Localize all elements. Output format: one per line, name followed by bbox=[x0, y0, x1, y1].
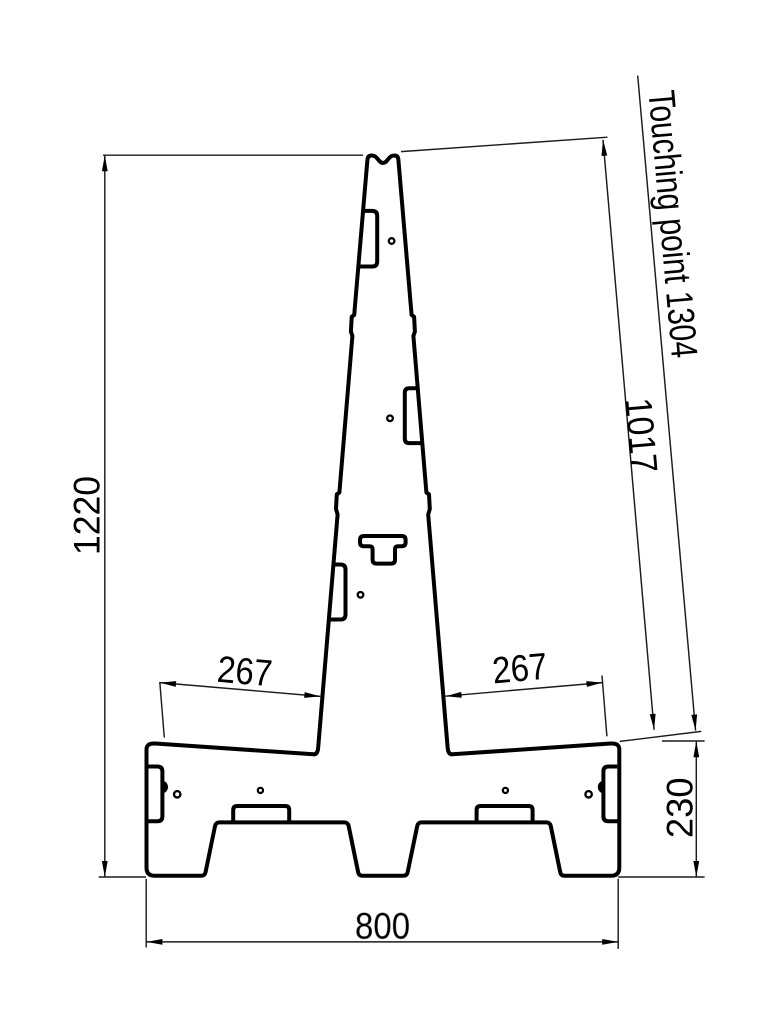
svg-text:1017: 1017 bbox=[617, 396, 665, 474]
svg-text:267: 267 bbox=[491, 646, 550, 692]
svg-text:267: 267 bbox=[215, 649, 273, 695]
svg-text:1220: 1220 bbox=[66, 476, 108, 555]
svg-text:800: 800 bbox=[355, 906, 410, 947]
svg-text:230: 230 bbox=[659, 777, 701, 838]
